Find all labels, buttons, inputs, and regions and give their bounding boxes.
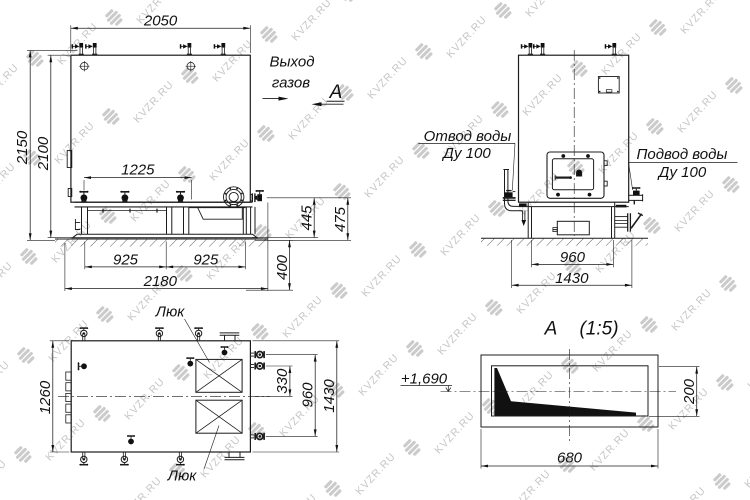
svg-text:960: 960 xyxy=(300,382,317,408)
svg-text:Люк: Люк xyxy=(167,468,198,485)
svg-text:A: A xyxy=(329,82,343,103)
svg-text:200: 200 xyxy=(681,378,698,405)
svg-text:2050: 2050 xyxy=(143,12,178,29)
svg-text:2150: 2150 xyxy=(14,130,31,165)
svg-text:газов: газов xyxy=(272,75,310,92)
svg-text:1430: 1430 xyxy=(555,270,589,287)
svg-text:Люк: Люк xyxy=(155,303,186,320)
svg-text:1225: 1225 xyxy=(121,162,155,179)
svg-text:400: 400 xyxy=(274,254,291,280)
svg-text:1430: 1430 xyxy=(321,379,338,413)
svg-text:330: 330 xyxy=(274,368,291,394)
svg-text:A: A xyxy=(544,319,558,340)
svg-text:Выход: Выход xyxy=(269,54,314,71)
svg-text:Отвод воды: Отвод воды xyxy=(424,128,512,145)
svg-text:Ду 100: Ду 100 xyxy=(441,145,491,162)
svg-text:Подвод воды: Подвод воды xyxy=(637,146,728,163)
svg-text:475: 475 xyxy=(332,206,349,232)
svg-text:(1:5): (1:5) xyxy=(579,319,618,340)
svg-text:2100: 2100 xyxy=(35,136,52,171)
svg-text:680: 680 xyxy=(557,450,583,467)
svg-text:2180: 2180 xyxy=(143,273,178,290)
svg-text:925: 925 xyxy=(113,251,139,268)
svg-text:960: 960 xyxy=(560,249,586,266)
svg-text:925: 925 xyxy=(193,251,219,268)
svg-text:1260: 1260 xyxy=(37,380,54,414)
svg-text:+1,690: +1,690 xyxy=(401,370,448,387)
svg-text:445: 445 xyxy=(299,205,316,231)
svg-text:Ду 100: Ду 100 xyxy=(657,164,707,181)
